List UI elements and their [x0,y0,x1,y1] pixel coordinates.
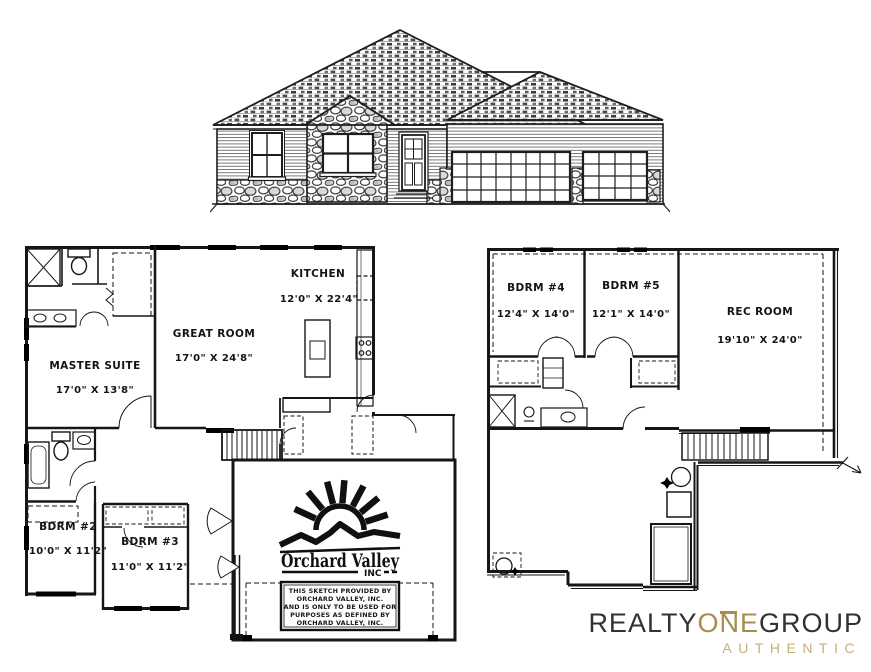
door-arc [119,396,151,428]
closet [284,416,303,454]
master-suite-walls [25,246,155,428]
bedroom3-walls [103,504,188,610]
walkout-arrow-icon [837,457,861,473]
pantry [352,416,373,454]
kitchen-dims: 12'0" X 22'4" [280,294,358,305]
hall-wall [487,407,679,429]
front-porch [190,555,243,640]
utilities [643,462,698,591]
bdrm3-dims: 11'0" X 11'2" [111,562,189,573]
bench [283,398,330,412]
bdrm4-dims: 12'4" X 14'0" [497,309,575,320]
brokerage-wordmark: REALTYONEGROUP [588,610,863,637]
svg-text:AND IS ONLY TO BE USED FOR: AND IS ONLY TO BE USED FOR [284,603,397,611]
rec-room-label: REC ROOM [727,306,793,318]
brokerage-word-realty: REALTY [588,608,697,638]
roof [213,30,663,129]
stone-pillar [647,170,660,202]
brokerage-tagline: AUTHENTIC [588,641,863,655]
refrigerator [357,276,373,300]
ground-line [210,204,670,214]
stairs [682,433,768,460]
great-room-label: GREAT ROOM [173,328,255,340]
bdrm5-label: BDRM #5 [602,280,660,292]
stairs-main [155,428,282,460]
stone-pillar [440,168,452,204]
basement-bath [489,390,587,427]
rec-room-dims: 19'10" X 24'0" [717,335,803,346]
closet [152,507,184,524]
brokerage-word-group: GROUP [759,608,863,638]
bdrm2-label: BDRM #2 [39,521,97,533]
master-bath [27,249,155,326]
brokerage-word-one: ONE [697,610,759,637]
water-heater [672,468,691,487]
kitchen-label: KITCHEN [291,268,345,280]
stone-pillar [572,168,583,204]
bedroom2-walls [25,482,95,594]
builder-suffix: INC [364,569,382,579]
closet [28,506,78,522]
vanity [541,408,587,427]
furnace [667,492,691,517]
closets [487,358,678,388]
bdrm5-dims: 12'1" X 14'0" [592,309,670,320]
sink [73,432,95,449]
svg-text:ORCHARD VALLEY, INC.: ORCHARD VALLEY, INC. [297,595,384,603]
builder-name: Orchard Valley [281,550,400,572]
bdrm3-label: BDRM #3 [121,536,179,548]
bifold-door [106,288,113,306]
mud-room [280,398,455,460]
master-suite-label: MASTER SUITE [49,360,140,372]
toilet-tank [52,432,70,441]
door-arcs [80,312,108,326]
garage-doors [440,152,660,204]
svg-text:ORCHARD VALLEY, INC.: ORCHARD VALLEY, INC. [297,619,384,627]
mountain-icon [280,524,400,545]
pedestal-sink [524,407,534,417]
linen-closet [543,358,563,388]
builder-logo: Orchard Valley INC THIS SKETCH PROVIDED … [280,480,400,630]
sump-pump [493,553,521,577]
bdrm2-dims: 10'0" X 11'2" [29,546,107,557]
svg-text:PURPOSES AS DEFINED BY: PURPOSES AS DEFINED BY [290,611,390,619]
closet [106,507,148,524]
center-window [320,134,376,177]
great-room-dims: 17'0" X 24'8" [175,353,253,364]
walk-in-closet [113,253,151,316]
main-floor-plan: KITCHEN 12'0" X 22'4" GREAT ROOM 17'0" X… [18,236,466,666]
left-window [249,131,286,181]
svg-text:THIS SKETCH PROVIDED BY: THIS SKETCH PROVIDED BY [289,587,392,595]
front-door [218,556,239,578]
basement-floor-plan: BDRM #4 12'4" X 14'0" BDRM #5 12'1" X 14… [483,240,871,596]
listing-sheet: KITCHEN 12'0" X 22'4" GREAT ROOM 17'0" X… [0,0,871,672]
master-suite-dims: 17'0" X 13'8" [56,385,134,396]
bdrm4-label: BDRM #4 [507,282,565,294]
disclaimer-box: THIS SKETCH PROVIDED BY ORCHARD VALLEY, … [281,582,399,630]
toilet-tank [68,249,90,257]
front-door [394,132,433,198]
island [305,320,330,377]
toilet [72,258,87,275]
brokerage-logo: REALTYONEGROUP AUTHENTIC [588,610,863,655]
garage-entry-door [207,508,232,534]
hall-bath [28,428,95,502]
range [356,337,373,359]
exterior-walls [487,248,839,589]
sun-rays-icon [295,480,388,522]
house-elevation-drawing [210,10,670,218]
toilet [54,442,68,460]
